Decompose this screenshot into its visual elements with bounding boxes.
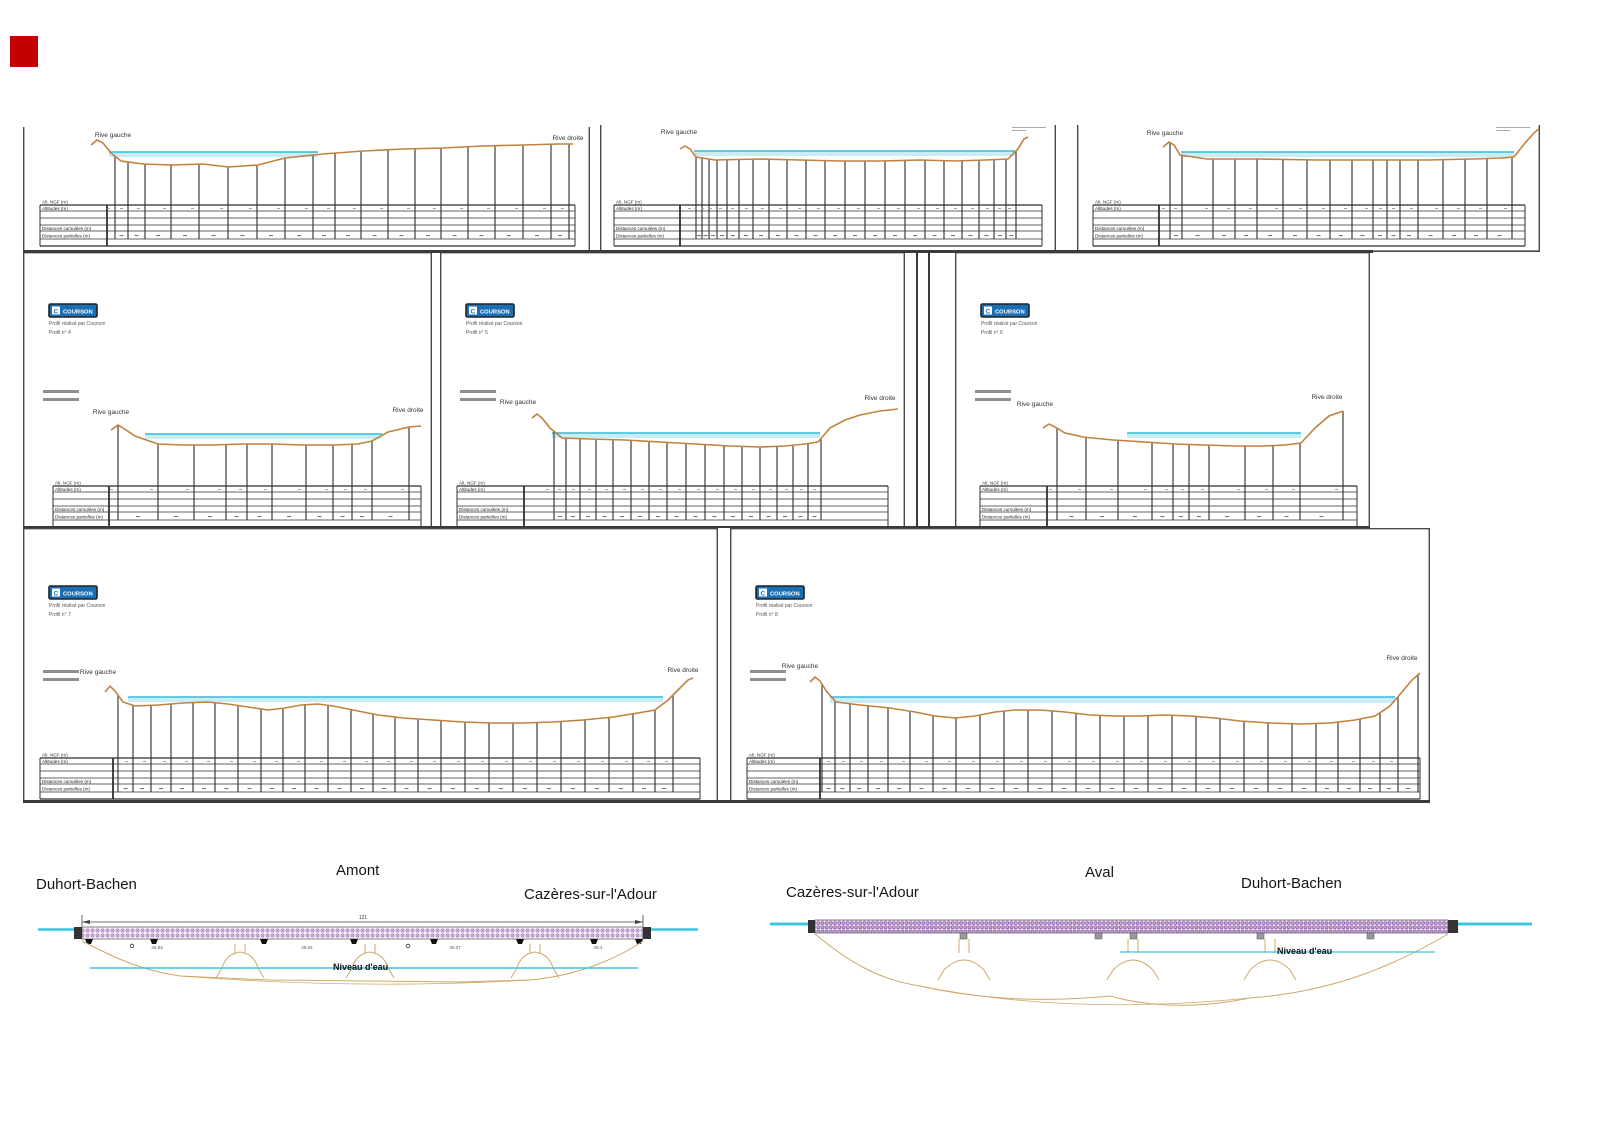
- sheet-caption: Profil réalisé par Courson: [981, 321, 1038, 327]
- downstream-water-level-label: Niveau d'eau: [1277, 946, 1332, 956]
- svg-text:C: C: [986, 308, 991, 315]
- svg-text:Alt. NGF (m): Alt. NGF (m): [982, 481, 1008, 486]
- survey-verticals: [1057, 411, 1343, 520]
- svg-text:Alt. NGF (m): Alt. NGF (m): [42, 753, 68, 758]
- legend-bar: [43, 670, 79, 673]
- downstream-direction-label: Aval: [1085, 864, 1114, 881]
- terrain-outline: [815, 934, 1448, 1005]
- upstream-city-left-label: Duhort-Bachen: [36, 876, 137, 893]
- sheet-caption: Profil réalisé par Courson: [49, 603, 106, 609]
- svg-text:Altitudes (m): Altitudes (m): [42, 206, 68, 211]
- water-band: [1181, 152, 1514, 157]
- sheet-separator-line: [916, 252, 918, 528]
- svg-text:Altitudes (m): Altitudes (m): [616, 206, 642, 211]
- svg-text:Alt. NGF (m): Alt. NGF (m): [55, 481, 81, 486]
- water-band: [694, 151, 1015, 156]
- profile-sheet-3: Rive gaucheAlt. NGF (m)Altitudes (m)Dist…: [1077, 125, 1540, 252]
- svg-text:Altitudes (m): Altitudes (m): [982, 487, 1008, 492]
- svg-text:C: C: [761, 590, 766, 597]
- legend-bar: [750, 678, 786, 681]
- survey-table: Alt. NGF (m)Altitudes (m)Distances cumul…: [1093, 200, 1525, 247]
- bank-right-label: Rive droite: [864, 395, 895, 402]
- survey-table: Alt. NGF (m)Altitudes (m)Distances cumul…: [457, 481, 888, 528]
- bank-left-label: Rive gauche: [1017, 401, 1054, 408]
- svg-text:Distances cumulées (m): Distances cumulées (m): [42, 226, 92, 231]
- pier: [346, 944, 394, 978]
- svg-text:Distances partielles (m): Distances partielles (m): [55, 515, 103, 520]
- upstream-water-level-label: Niveau d'eau: [333, 962, 388, 972]
- legend-bar: [460, 398, 496, 401]
- span-dimension: 33.93: [151, 945, 163, 950]
- svg-text:Distances cumulées (m): Distances cumulées (m): [616, 226, 666, 231]
- svg-text:Distances partielles (m): Distances partielles (m): [616, 234, 664, 239]
- svg-text:Distances cumulées (m): Distances cumulées (m): [459, 507, 509, 512]
- sheet-separator-line: [23, 250, 1373, 253]
- bank-right-label: Rive droite: [667, 667, 698, 674]
- pier: [938, 939, 990, 980]
- sheet-number: Profil n° 7: [49, 612, 71, 618]
- svg-text:C: C: [54, 308, 59, 315]
- profile-sheet-7: CCOURSONProfil réalisé par CoursonProfil…: [23, 528, 718, 802]
- drawing-page: Rive gaucheRive droiteAlt. NGF (m)Altitu…: [0, 0, 1600, 1131]
- survey-table: Alt. NGF (m)Altitudes (m)Distances cumul…: [53, 481, 421, 528]
- sheet-number: Profil n° 8: [756, 612, 778, 618]
- survey-verticals: [1170, 143, 1512, 239]
- water-band: [552, 433, 820, 438]
- svg-text:COURSON: COURSON: [63, 592, 93, 598]
- sheet-number: Profil n° 4: [49, 330, 71, 336]
- legend-bar: [43, 678, 79, 681]
- sheet-caption: Profil réalisé par Courson: [756, 603, 813, 609]
- sheet-separator-line: [23, 800, 1430, 803]
- svg-text:Distances partielles (m): Distances partielles (m): [459, 515, 507, 520]
- svg-text:Alt. NGF (m): Alt. NGF (m): [1095, 200, 1121, 205]
- bank-left-label: Rive gauche: [661, 129, 698, 136]
- svg-text:Alt. NGF (m): Alt. NGF (m): [616, 200, 642, 205]
- survey-verticals: [696, 151, 1016, 239]
- sheet-separator-line: [928, 252, 930, 528]
- span-dimension: 29.04: [301, 945, 313, 950]
- svg-text:Altitudes (m): Altitudes (m): [459, 487, 485, 492]
- profile-sheet-6: CCOURSONProfil réalisé par CoursonProfil…: [955, 252, 1370, 528]
- svg-text:Altitudes (m): Altitudes (m): [42, 759, 68, 764]
- logo-courson: CCOURSON: [49, 304, 97, 317]
- svg-text:Distances cumulées (m): Distances cumulées (m): [982, 507, 1032, 512]
- survey-verticals: [554, 431, 821, 520]
- sheet-number: Profil n° 6: [981, 330, 1003, 336]
- terrain-line: [532, 409, 898, 447]
- svg-text:COURSON: COURSON: [770, 592, 800, 598]
- profile-sheet-1: Rive gaucheRive droiteAlt. NGF (m)Altitu…: [23, 127, 590, 252]
- sheet-caption: Profil réalisé par Courson: [466, 321, 523, 327]
- red-marker: [10, 36, 38, 67]
- bank-right-label: Rive droite: [552, 135, 583, 142]
- svg-text:COURSON: COURSON: [63, 310, 93, 316]
- water-band: [109, 152, 318, 157]
- svg-text:Distances partielles (m): Distances partielles (m): [749, 787, 797, 792]
- sheet-separator-line: [23, 526, 1370, 528]
- bank-right-label: Rive droite: [1386, 655, 1417, 662]
- survey-verticals: [118, 695, 673, 792]
- bank-left-label: Rive gauche: [500, 399, 537, 406]
- svg-text:Distances partielles (m): Distances partielles (m): [982, 515, 1030, 520]
- svg-text:Altitudes (m): Altitudes (m): [749, 759, 775, 764]
- svg-text:Distances partielles (m): Distances partielles (m): [42, 234, 90, 239]
- bank-right-label: Rive droite: [392, 407, 423, 414]
- survey-table: Alt. NGF (m)Altitudes (m)Distances cumul…: [40, 753, 700, 800]
- bank-left-label: Rive gauche: [1147, 130, 1184, 137]
- svg-text:Altitudes (m): Altitudes (m): [55, 487, 81, 492]
- sheet-caption: Profil réalisé par Courson: [49, 321, 106, 327]
- span-dimension: 29.4: [594, 945, 603, 950]
- svg-text:Alt. NGF (m): Alt. NGF (m): [749, 753, 775, 758]
- survey-table: Alt. NGF (m)Altitudes (m)Distances cumul…: [747, 753, 1420, 800]
- survey-table: Alt. NGF (m)Altitudes (m)Distances cumul…: [614, 200, 1042, 247]
- water-band: [1127, 433, 1301, 438]
- bank-left-label: Rive gauche: [80, 669, 117, 676]
- logo-courson: CCOURSON: [981, 304, 1029, 317]
- water-band: [830, 697, 1395, 703]
- profile-sheet-5: CCOURSONProfil réalisé par CoursonProfil…: [440, 252, 905, 528]
- svg-text:C: C: [54, 590, 59, 597]
- pier: [1107, 939, 1159, 980]
- legend-bar: [975, 398, 1011, 401]
- bridge-deck: [815, 920, 1448, 933]
- svg-text:Distances partielles (m): Distances partielles (m): [1095, 234, 1143, 239]
- bank-right-label: Rive droite: [1311, 394, 1342, 401]
- downstream-elevation-drawing: [770, 858, 1540, 1008]
- svg-text:Alt. NGF (m): Alt. NGF (m): [42, 200, 68, 205]
- upstream-direction-label: Amont: [336, 862, 379, 879]
- terrain-line: [1043, 411, 1343, 446]
- downstream-city-left-label: Cazères-sur-l'Adour: [786, 884, 919, 901]
- svg-text:COURSON: COURSON: [480, 310, 510, 316]
- svg-text:Altitudes (m): Altitudes (m): [1095, 206, 1121, 211]
- logo-courson: CCOURSON: [466, 304, 514, 317]
- legend-bar: [43, 390, 79, 393]
- survey-verticals: [822, 675, 1418, 792]
- svg-text:Distances cumulées (m): Distances cumulées (m): [42, 779, 92, 784]
- svg-text:Distances cumulées (m): Distances cumulées (m): [55, 507, 105, 512]
- logo-courson: CCOURSON: [49, 586, 97, 599]
- svg-text:COURSON: COURSON: [995, 310, 1025, 316]
- legend-bar: [43, 398, 79, 401]
- terrain-line: [680, 137, 1028, 161]
- logo-courson: CCOURSON: [756, 586, 804, 599]
- bank-left-label: Rive gauche: [95, 132, 132, 139]
- span-dimension: 30.07: [449, 945, 461, 950]
- svg-text:C: C: [471, 308, 476, 315]
- bank-left-label: Rive gauche: [93, 409, 130, 416]
- bridge-deck: [82, 927, 643, 939]
- profile-sheet-4: CCOURSONProfil réalisé par CoursonProfil…: [23, 252, 432, 528]
- profile-sheet-2: Rive gaucheAlt. NGF (m)Altitudes (m)Dist…: [600, 125, 1056, 252]
- svg-text:Distances cumulées (m): Distances cumulées (m): [749, 779, 799, 784]
- svg-text:Alt. NGF (m): Alt. NGF (m): [459, 481, 485, 486]
- bank-left-label: Rive gauche: [782, 663, 819, 670]
- sheet-number: Profil n° 5: [466, 330, 488, 336]
- legend-bar: [460, 390, 496, 393]
- downstream-city-right-label: Duhort-Bachen: [1241, 875, 1342, 892]
- legend-bar: [975, 390, 1011, 393]
- upstream-city-right-label: Cazères-sur-l'Adour: [524, 886, 657, 903]
- svg-text:Distances partielles (m): Distances partielles (m): [42, 787, 90, 792]
- pier: [511, 944, 559, 978]
- legend-bar: [750, 670, 786, 673]
- profile-sheet-8: CCOURSONProfil réalisé par CoursonProfil…: [730, 528, 1430, 802]
- water-band: [145, 434, 382, 439]
- pier: [216, 944, 264, 978]
- svg-text:Distances cumulées (m): Distances cumulées (m): [1095, 226, 1145, 231]
- svg-text:121: 121: [359, 915, 368, 921]
